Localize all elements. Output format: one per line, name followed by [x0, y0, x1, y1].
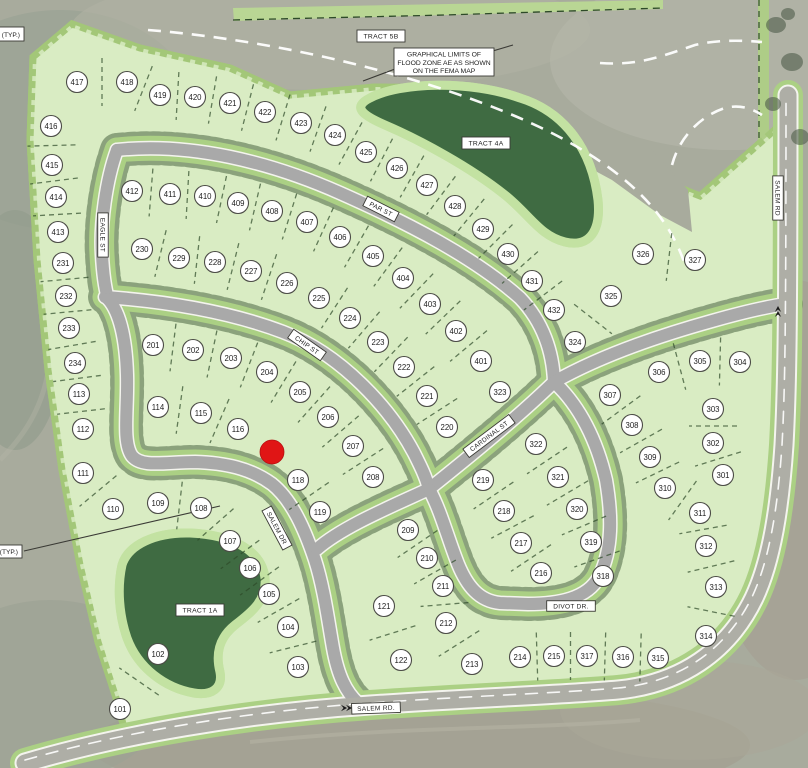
lot-410: 410 [195, 186, 216, 207]
lot-number: 201 [146, 341, 159, 350]
lot-116: 116 [228, 419, 249, 440]
lot-number: 121 [377, 602, 390, 611]
lot-407: 407 [297, 212, 318, 233]
lot-number: 206 [321, 413, 334, 422]
lot-231: 231 [53, 253, 74, 274]
lot-326: 326 [633, 244, 654, 265]
lot-108: 108 [191, 498, 212, 519]
lot-414: 414 [46, 187, 67, 208]
lot-number: 425 [359, 148, 373, 157]
lot-number: 232 [59, 292, 72, 301]
lot-301: 301 [713, 465, 734, 486]
street-label-eagle-st: EAGLE ST [98, 213, 109, 257]
lot-314: 314 [696, 626, 717, 647]
lot-number: 302 [706, 439, 719, 448]
lot-number: 325 [604, 292, 618, 301]
lot-number: 112 [77, 425, 89, 434]
lot-406: 406 [330, 227, 351, 248]
lot-206: 206 [318, 407, 339, 428]
lot-219: 219 [473, 470, 494, 491]
lot-222: 222 [394, 357, 415, 378]
lot-427: 427 [417, 175, 438, 196]
lot-310: 310 [655, 478, 676, 499]
lot-409: 409 [228, 193, 249, 214]
lot-number: 308 [625, 421, 638, 430]
lot-number: 207 [346, 442, 359, 451]
lot-111: 111 [73, 463, 94, 484]
lot-number: 229 [172, 254, 185, 263]
lot-number: 226 [280, 279, 293, 288]
lot-110: 110 [103, 499, 124, 520]
lot-405: 405 [363, 246, 384, 267]
lot-number: 311 [694, 509, 706, 518]
lot-402: 402 [446, 321, 467, 342]
lot-233: 233 [59, 318, 80, 339]
lot-302: 302 [703, 433, 724, 454]
lot-number: 413 [51, 228, 64, 237]
lot-316: 316 [613, 647, 634, 668]
lot-number: 415 [45, 161, 59, 170]
lot-305: 305 [690, 351, 711, 372]
lot-408: 408 [262, 201, 283, 222]
lot-number: 202 [186, 346, 199, 355]
lot-number: 116 [232, 425, 244, 434]
lot-number: 102 [151, 650, 164, 659]
selected-lot-marker [260, 440, 284, 464]
lot-number: 208 [366, 473, 379, 482]
lot-415: 415 [42, 155, 63, 176]
lot-number: 105 [262, 590, 276, 599]
lot-number: 222 [397, 363, 410, 372]
lot-number: 204 [260, 368, 274, 377]
flood-zone-note-line: FLOOD ZONE AE AS SHOWN [397, 60, 490, 67]
lot-number: 431 [525, 277, 538, 286]
lot-number: 410 [198, 192, 212, 201]
tract-label-tract-4a: TRACT 4A [462, 137, 510, 149]
lot-number: 111 [77, 469, 89, 478]
lot-221: 221 [417, 386, 438, 407]
lot-number: 408 [265, 207, 278, 216]
lot-224: 224 [340, 308, 361, 329]
lot-230: 230 [132, 239, 153, 260]
street-label-salem-rd: SALEM RD [773, 176, 784, 220]
flood-zone-note-line: GRAPHICAL LIMITS OF [407, 52, 481, 59]
lot-220: 220 [437, 417, 458, 438]
flood-zone-note: GRAPHICAL LIMITS OFFLOOD ZONE AE AS SHOW… [394, 48, 494, 76]
lot-104: 104 [278, 617, 299, 638]
lot-317: 317 [577, 646, 598, 667]
lot-225: 225 [309, 288, 330, 309]
lot-number: 101 [113, 705, 126, 714]
lot-number: 309 [643, 453, 656, 462]
lot-number: 414 [49, 193, 63, 202]
lot-number: 314 [699, 632, 713, 641]
lot-113: 113 [69, 384, 90, 405]
lot-215: 215 [544, 646, 565, 667]
lot-207: 207 [343, 436, 364, 457]
lot-number: 106 [243, 564, 256, 573]
lot-209: 209 [398, 520, 419, 541]
lot-number: 220 [440, 423, 454, 432]
lot-number: 301 [716, 471, 729, 480]
lot-322: 322 [526, 434, 547, 455]
lot-114: 114 [148, 397, 169, 418]
lot-number: 303 [706, 405, 719, 414]
lot-number: 233 [62, 324, 75, 333]
lot-number: 409 [231, 199, 244, 208]
lot-number: 209 [401, 526, 414, 535]
lot-325: 325 [601, 286, 622, 307]
lot-number: 211 [437, 582, 449, 591]
lot-number: 210 [420, 554, 434, 563]
lot-232: 232 [56, 286, 77, 307]
lot-number: 420 [188, 93, 202, 102]
lot-number: 322 [529, 440, 542, 449]
lot-number: 424 [328, 131, 342, 140]
lot-number: 122 [394, 656, 407, 665]
lot-number: 421 [223, 99, 236, 108]
lot-308: 308 [622, 415, 643, 436]
lot-number: 114 [152, 403, 165, 412]
lot-number: 109 [151, 499, 164, 508]
lot-number: 402 [449, 327, 462, 336]
lot-426: 426 [387, 158, 408, 179]
tract-name: TRACT 1A [182, 607, 217, 614]
lot-212: 212 [436, 613, 457, 634]
lot-118: 118 [288, 470, 309, 491]
typ-label-top: Y (TYP.) [0, 27, 24, 41]
lot-number: 406 [333, 233, 346, 242]
lot-420: 420 [185, 87, 206, 108]
lot-401: 401 [471, 351, 492, 372]
lot-102: 102 [148, 644, 169, 665]
lot-432: 432 [544, 300, 565, 321]
lot-417: 417 [67, 72, 88, 93]
lot-307: 307 [600, 385, 621, 406]
lot-number: 219 [476, 476, 489, 485]
lot-218: 218 [494, 501, 515, 522]
lot-number: 321 [551, 473, 564, 482]
lot-418: 418 [117, 72, 138, 93]
lot-number: 215 [547, 652, 561, 661]
lot-number: 419 [153, 91, 166, 100]
lot-number: 306 [652, 368, 665, 377]
lot-211: 211 [433, 576, 454, 597]
lot-214: 214 [510, 647, 531, 668]
marker-layer [260, 440, 284, 464]
lot-number: 327 [688, 256, 701, 265]
lot-320: 320 [567, 499, 588, 520]
lot-number: 412 [125, 187, 138, 196]
lot-223: 223 [368, 332, 389, 353]
lot-number: 312 [699, 542, 712, 551]
lot-number: 417 [70, 78, 83, 87]
lot-204: 204 [257, 362, 278, 383]
lot-112: 112 [73, 419, 94, 440]
lot-number: 418 [120, 78, 133, 87]
lot-number: 326 [636, 250, 649, 259]
lot-106: 106 [240, 558, 261, 579]
lot-421: 421 [220, 93, 241, 114]
lot-number: 315 [651, 654, 665, 663]
lot-number: 316 [616, 653, 629, 662]
lot-number: 404 [396, 274, 410, 283]
lot-304: 304 [730, 352, 751, 373]
lot-number: 427 [420, 181, 433, 190]
lot-216: 216 [531, 563, 552, 584]
lot-number: 217 [514, 539, 527, 548]
lot-number: 231 [56, 259, 69, 268]
lot-number: 401 [474, 357, 487, 366]
lot-425: 425 [356, 142, 377, 163]
lot-number: 430 [501, 250, 515, 259]
lot-428: 428 [445, 196, 466, 217]
lot-103: 103 [288, 657, 309, 678]
typ-label-left: (TYP.) [0, 545, 22, 558]
lot-226: 226 [277, 273, 298, 294]
lot-number: 224 [343, 314, 357, 323]
plat-map-stage: 1011021031041051061071081091101111121131… [0, 0, 808, 768]
lot-121: 121 [374, 596, 395, 617]
lot-309: 309 [640, 447, 661, 468]
lot-303: 303 [703, 399, 724, 420]
lot-number: 234 [68, 359, 82, 368]
street-label-salem-rd-: SALEM RD. [352, 702, 401, 714]
lot-313: 313 [706, 577, 727, 598]
lot-323: 323 [490, 382, 511, 403]
lot-number: 403 [423, 300, 436, 309]
tract-label-tract-5b: TRACT 5B [357, 30, 405, 42]
street-name: DIVOT DR. [553, 603, 588, 610]
lot-number: 310 [658, 484, 672, 493]
lot-229: 229 [169, 248, 190, 269]
lot-number: 426 [390, 164, 403, 173]
lot-321: 321 [548, 467, 569, 488]
lot-119: 119 [310, 502, 331, 523]
lot-318: 318 [593, 566, 614, 587]
street-name: EAGLE ST [99, 218, 106, 252]
typ-label-top-text: Y (TYP.) [0, 32, 20, 39]
lot-number: 423 [294, 119, 307, 128]
lot-403: 403 [420, 294, 441, 315]
tract-name: TRACT 4A [468, 140, 503, 147]
lot-number: 213 [465, 660, 478, 669]
lot-430: 430 [498, 244, 519, 265]
lot-101: 101 [110, 699, 131, 720]
lot-306: 306 [649, 362, 670, 383]
lot-number: 221 [420, 392, 433, 401]
lot-422: 422 [255, 102, 276, 123]
flood-zone-note-line: ON THE FEMA MAP [413, 68, 476, 75]
lot-number: 407 [300, 218, 313, 227]
tract-name: TRACT 5B [363, 33, 398, 40]
lot-228: 228 [205, 252, 226, 273]
lot-413: 413 [48, 222, 69, 243]
lot-number: 227 [244, 267, 257, 276]
lot-315: 315 [648, 648, 669, 669]
lot-number: 119 [314, 508, 326, 517]
lot-122: 122 [391, 650, 412, 671]
street-label-divot-dr-: DIVOT DR. [547, 601, 596, 612]
street-name: SALEM RD [774, 180, 781, 216]
lot-109: 109 [148, 493, 169, 514]
tract-label-tract-1a: TRACT 1A [176, 604, 224, 616]
lot-number: 108 [194, 504, 207, 513]
lot-number: 320 [570, 505, 584, 514]
lot-number: 313 [709, 583, 722, 592]
lot-234: 234 [65, 353, 86, 374]
lot-107: 107 [220, 531, 241, 552]
lot-number: 429 [476, 225, 489, 234]
lot-201: 201 [143, 335, 164, 356]
lot-423: 423 [291, 113, 312, 134]
lot-number: 305 [693, 357, 707, 366]
lot-number: 432 [547, 306, 560, 315]
lot-404: 404 [393, 268, 414, 289]
lot-number: 230 [135, 245, 149, 254]
lot-number: 216 [534, 569, 547, 578]
lot-217: 217 [511, 533, 532, 554]
lot-number: 319 [584, 538, 597, 547]
street-name: SALEM RD. [357, 705, 395, 713]
lot-202: 202 [183, 340, 204, 361]
lot-424: 424 [325, 125, 346, 146]
lot-number: 228 [208, 258, 221, 267]
lot-number: 212 [439, 619, 452, 628]
lot-number: 324 [568, 338, 582, 347]
lot-number: 118 [292, 476, 304, 485]
lot-number: 317 [580, 652, 593, 661]
lot-number: 214 [513, 653, 527, 662]
lot-105: 105 [259, 584, 280, 605]
lot-208: 208 [363, 467, 384, 488]
lot-205: 205 [290, 382, 311, 403]
lot-115: 115 [191, 403, 212, 424]
lot-number: 422 [258, 108, 271, 117]
lot-number: 416 [44, 122, 57, 131]
lot-324: 324 [565, 332, 586, 353]
lot-419: 419 [150, 85, 171, 106]
lot-number: 307 [603, 391, 616, 400]
lot-number: 223 [371, 338, 384, 347]
lot-number: 113 [73, 390, 85, 399]
lot-429: 429 [473, 219, 494, 240]
lot-319: 319 [581, 532, 602, 553]
lot-412: 412 [122, 181, 143, 202]
lot-number: 225 [312, 294, 326, 303]
lot-number: 304 [733, 358, 747, 367]
lot-number: 110 [107, 505, 120, 514]
lot-number: 107 [223, 537, 236, 546]
typ-label-left-text: (TYP.) [0, 549, 18, 556]
lot-number: 203 [224, 354, 237, 363]
lot-number: 411 [164, 190, 176, 199]
lot-227: 227 [241, 261, 262, 282]
lot-312: 312 [696, 536, 717, 557]
lot-number: 103 [291, 663, 304, 672]
lot-number: 318 [596, 572, 609, 581]
lot-number: 104 [281, 623, 295, 632]
lot-number: 205 [293, 388, 307, 397]
lot-203: 203 [221, 348, 242, 369]
lot-411: 411 [160, 184, 181, 205]
lot-number: 405 [366, 252, 380, 261]
lot-431: 431 [522, 271, 543, 292]
lot-213: 213 [462, 654, 483, 675]
lot-311: 311 [690, 503, 711, 524]
lot-327: 327 [685, 250, 706, 271]
lot-number: 218 [497, 507, 510, 516]
lot-416: 416 [41, 116, 62, 137]
lot-210: 210 [417, 548, 438, 569]
lot-number: 323 [493, 388, 506, 397]
lot-number: 428 [448, 202, 461, 211]
lot-number: 115 [195, 409, 208, 418]
plat-map: 1011021031041051061071081091101111121131… [0, 0, 808, 768]
